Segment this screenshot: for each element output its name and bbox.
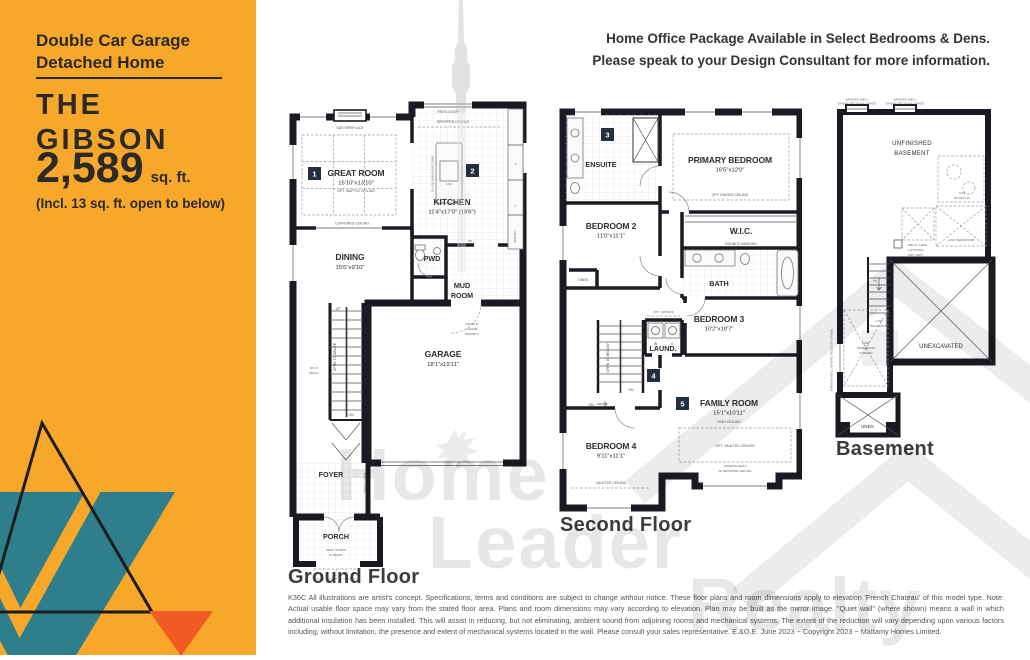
mech-label-1: MECH. AREA (908, 243, 928, 247)
bedroom4-label: BEDROOM 4 (586, 441, 637, 451)
raised-ceiling-label: OPT. RAISED CEILING (712, 193, 749, 197)
primary-bedroom-label: PRIMARY BEDROOM (688, 155, 772, 165)
foyer-label: FOYER (319, 470, 345, 479)
basement-up-label: UP (873, 279, 877, 283)
stairs-low-2: HEADROOM (870, 324, 889, 328)
square-footage: 2,589sq. ft. (36, 144, 191, 193)
left-low-2: HEADROOM (857, 346, 876, 350)
mech-label-2: LOCATION (908, 248, 924, 252)
keynote-badge-2: 2 (466, 164, 479, 177)
low-headroom-label: LOW HEADROOM (948, 238, 975, 242)
second-floor-title: Second Floor (560, 514, 691, 537)
great-room-dims: 15'10"x13'10" (338, 181, 374, 187)
window-well-side: WINDOW WELL WHERE REQ'D BY GRADE (830, 329, 834, 391)
keynote-badge-4: 4 (647, 369, 660, 382)
keynote-badge-1: 1 (308, 167, 321, 180)
bedroom2-label: BEDROOM 2 (586, 221, 637, 231)
double-hanging-label: DOUBLE HANGING (725, 242, 757, 246)
opt-uppers-label: OPT. UPPERS (653, 310, 673, 314)
left-low-1: LOW (862, 341, 869, 345)
sqft-unit: sq. ft. (151, 169, 191, 186)
badge-1-number: 1 (312, 170, 316, 179)
ensuite-label: ENSUITE (585, 160, 616, 169)
primary-bedroom-dims: 16'5"x12'0" (715, 168, 744, 174)
mud-label-2: ROOM (451, 291, 473, 300)
inset-steps-1: INSET STEPS (326, 548, 346, 552)
stairs-up-label: UP (336, 307, 342, 311)
home-type-line2: Detached Home (36, 52, 190, 74)
header-note: Home Office Package Available in Select … (570, 28, 990, 71)
badge-5-number: 5 (680, 400, 684, 409)
family-room-dims: 15'1"x10'11" (713, 411, 745, 417)
gas-label-2: ROUGH-IN (954, 196, 970, 200)
unex-label: UNEX. (861, 424, 875, 429)
breakfast-bar-label: FLUSH BREAKFAST BAR (431, 155, 435, 192)
garage-door-note-2: GRADE (466, 327, 477, 331)
garage-label: GARAGE (425, 349, 462, 359)
coffered-ceiling-label: COFFERED CEILING (335, 222, 370, 226)
unexcavated-label: UNEXCAVATED (919, 344, 963, 350)
brand-logo (0, 415, 256, 655)
sidebar: Double Car Garage Detached Home THE GIBS… (0, 0, 256, 655)
sqft-note: (Incl. 13 sq. ft. open to below) (36, 196, 225, 211)
mech-label-3: MAY VARY (908, 253, 923, 257)
porch-label: PORCH (323, 532, 349, 541)
stairs-low-1: LOW (875, 319, 882, 323)
ground-floor-plan: 1 2 GAS FIREPLACE GREAT ROOM 15'10"x13'1… (286, 85, 531, 585)
garage-door-note-1: DOOR IF (466, 322, 479, 326)
vaulted-opt-label: OPT. VAULTED CEILING (715, 444, 755, 448)
dropped-ceiling-label: DROPPED CEILING (437, 120, 470, 124)
ground-floor-title: Ground Floor (288, 566, 419, 589)
step-drop-label: STEP & DROP (363, 473, 367, 494)
dn-if-reqd-1: DN IF (310, 366, 318, 370)
window-well-2b: WHERE REQ'D BY GRADE (886, 102, 925, 106)
keynote-badge-5: 5 (676, 397, 689, 410)
high-ceiling-label: HIGH CEILING (717, 420, 741, 424)
header-note-line2: Please speak to your Design Consultant f… (570, 50, 990, 72)
second-floor-plan: 3 4 5 ENSUITE PRIMARY BEDROOM 16'5"x12'0… (557, 108, 802, 518)
basement-title: Basement (836, 438, 934, 461)
bedroom3-dims: 10'2"x10'7" (704, 327, 733, 333)
divider (36, 77, 222, 79)
basement-plan: WINDOW WELL WHERE REQ'D BY GRADE WINDOW … (828, 92, 1030, 444)
open-to-above-label: OPEN TO ABOVE (333, 342, 337, 371)
unfinished-label-1: UNFINISHED (892, 141, 932, 147)
bedroom3-label: BEDROOM 3 (694, 314, 745, 324)
dn-if-reqd-2: REQ'D (309, 371, 319, 375)
pwd-label: PWD (424, 254, 441, 263)
stairs-dn-label: DN (348, 413, 354, 417)
pantry-label: PANTRY (513, 231, 517, 243)
dishwasher-label: DW (446, 182, 451, 186)
unex-box (838, 395, 898, 435)
kitchen-label: KITCHEN (433, 197, 470, 207)
sink-label: S (514, 162, 516, 166)
bath-label: BATH (709, 279, 728, 288)
gas-fireplace-label: GAS FIREPLACE (336, 126, 364, 130)
dining-label: DINING (335, 252, 365, 262)
left-low-3: IF REQ'D (859, 351, 873, 355)
sqft-value: 2,589 (36, 144, 144, 192)
brochure-page: { "colors":{"sidebar":"#F7A82B","teal":"… (0, 0, 1030, 655)
second-dn-label: DN (628, 388, 634, 392)
waffle-ceiling-label: OPT. WAFFLE CEILING (337, 189, 375, 193)
open-to-below-label: OPEN TO BELOW (606, 343, 610, 373)
garage-door-note-3: PERMITS (465, 332, 479, 336)
bedroom4-dims: 9'11"x11'1" (597, 454, 625, 460)
family-room-label: FAMILY ROOM (700, 398, 758, 408)
second-stairs (598, 320, 643, 393)
keynote-badge-3: 3 (601, 128, 614, 141)
model-name-line1: THE (36, 88, 168, 123)
inset-steps-2: IF REQ'D (329, 553, 343, 557)
bed4-vaulted-label: VAULTED CEILING (596, 481, 627, 485)
logo-teal-triangle (0, 492, 175, 655)
kitchen-dims: 11'4"x17'0" (18'6") (428, 210, 475, 216)
gas-label-1: GAS (959, 191, 966, 195)
badge-3-number: 3 (605, 131, 609, 140)
dining-dims: 15'6"x9'10" (335, 265, 364, 271)
logo-orange-triangle (149, 611, 213, 655)
linen-label: LINEN (578, 278, 589, 282)
wic-fixtures (685, 216, 798, 222)
home-type: Double Car Garage Detached Home (36, 30, 190, 74)
fireplace (334, 110, 366, 121)
badge-2-number: 2 (470, 167, 474, 176)
unfinished-label-2: BASEMENT (894, 151, 929, 157)
wic-label: W.I.C. (730, 226, 753, 236)
great-room-label: GREAT ROOM (328, 168, 385, 178)
bedroom2-dims: 11'0"x11'1" (597, 234, 625, 240)
patio-door-label: PATIO DOOR (437, 110, 459, 114)
window-well-1b: WHERE REQ'D BY GRADE (838, 102, 877, 106)
window-seat-label-1: WINDOW SEAT (724, 464, 746, 468)
hall-dn-label: DN (588, 403, 594, 407)
fridge-label: F (515, 204, 517, 208)
garage-dims: 18'1"x19'11" (427, 362, 459, 368)
disclaimer-text: K36C All illustrations are artist's conc… (288, 592, 1004, 637)
mud-label-1: MUD (454, 281, 470, 290)
kitchen-dn-label: DN (468, 239, 472, 243)
header-note-line1: Home Office Package Available in Select … (570, 28, 990, 50)
home-type-line1: Double Car Garage (36, 30, 190, 52)
window-seat-label-2: W/ DROPPED CEILING (718, 469, 752, 473)
